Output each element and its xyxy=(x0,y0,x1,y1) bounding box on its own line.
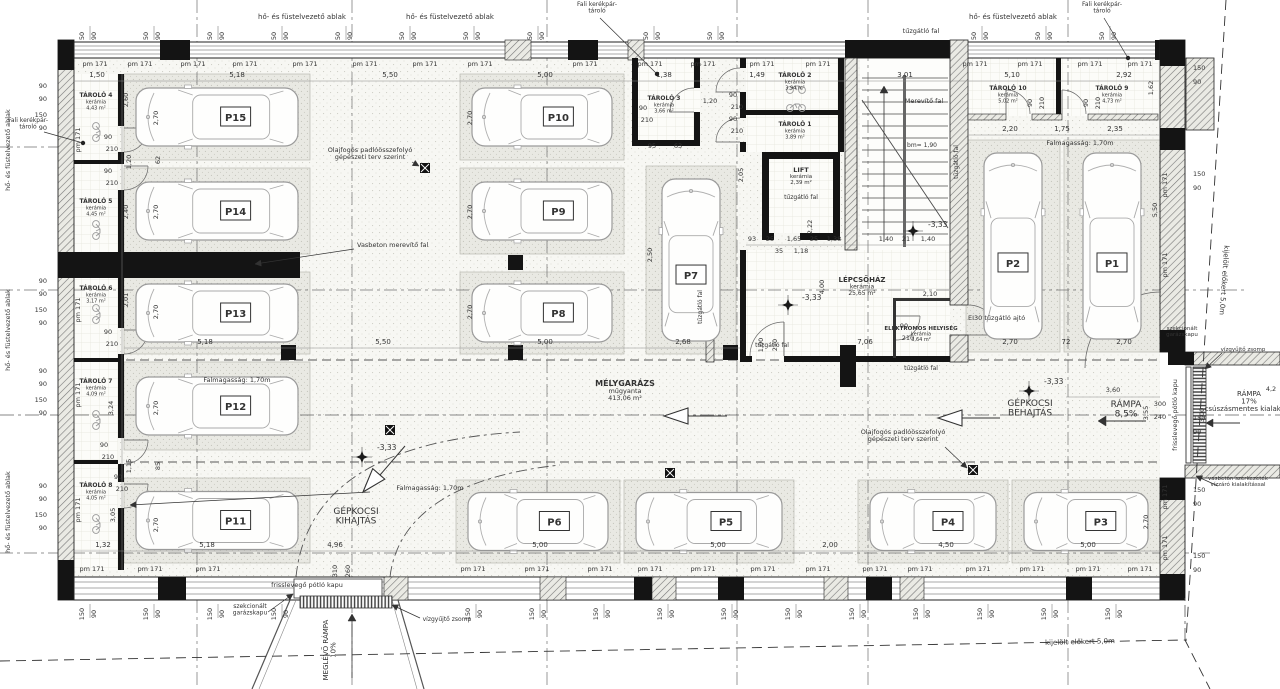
structural-column xyxy=(508,345,523,360)
car-icon xyxy=(981,153,1045,339)
storage-wall xyxy=(118,354,124,438)
storage-room-label: TÁROLÓ 7 xyxy=(80,378,113,385)
car-part xyxy=(185,435,192,438)
tick-label: 90 xyxy=(39,290,47,298)
tick-label: 50 xyxy=(142,32,150,40)
wall-column xyxy=(1066,577,1092,600)
storage-room-area: 3,94 m² xyxy=(785,86,805,92)
storage-room-finish: kerámia xyxy=(86,99,106,106)
tick-label: 150 xyxy=(1193,486,1205,494)
annotation: tűzgátló fal xyxy=(904,365,938,372)
car-part xyxy=(659,228,662,235)
parapet-label: pm 171 xyxy=(751,565,776,573)
wall-column-hatched xyxy=(824,577,848,600)
parapet-label: pm 171 xyxy=(1161,485,1169,510)
tick-label: 150 xyxy=(848,608,856,620)
car-part xyxy=(472,88,612,146)
parapet-label: pm 171 xyxy=(691,60,716,68)
car-part xyxy=(185,240,192,243)
parking-label: P8 xyxy=(551,309,565,320)
dimension-text: 2,70 xyxy=(466,111,474,125)
car-part xyxy=(981,209,984,216)
staircase-wall xyxy=(740,356,752,362)
dimension-text: 2,70 xyxy=(1116,338,1132,346)
storage-room-area: 3,89 m² xyxy=(785,135,805,141)
annotation: frisslevegő pótló kapu xyxy=(1170,379,1179,451)
dimension-text: 2,05 xyxy=(737,168,745,182)
annotation: bm= 1,90 xyxy=(907,142,937,149)
parking-label: P9 xyxy=(551,207,565,218)
stair-wall xyxy=(845,58,857,250)
parapet-label: pm 171 xyxy=(691,565,716,573)
tick-label: 50 xyxy=(1098,32,1106,40)
car-part xyxy=(185,85,192,88)
tick-label: 90 xyxy=(1193,428,1201,436)
dimension-text: 2,01 xyxy=(122,293,130,307)
dimension-text: 3,01 xyxy=(897,71,913,79)
dimension-text: 95 xyxy=(648,142,656,150)
door-dimension: 210 xyxy=(106,145,118,153)
tick-label: 90 xyxy=(218,610,226,618)
dimension-text: 5,50 xyxy=(375,338,391,346)
door-dimension: 210 xyxy=(902,334,914,342)
wall-column xyxy=(1160,40,1185,66)
parapet-label: pm 171 xyxy=(1161,536,1169,561)
parking-label: P4 xyxy=(941,518,955,529)
parapet-label: pm 171 xyxy=(638,565,663,573)
tick-label: 90 xyxy=(988,610,996,618)
tick-label: 90 xyxy=(39,380,47,388)
car-part xyxy=(662,179,720,341)
parapet-label: pm 171 xyxy=(863,565,888,573)
lift-label-area: 2,39 m² xyxy=(790,179,812,186)
wall-column-hatched xyxy=(505,40,531,60)
parapet-label: pm 171 xyxy=(1128,60,1153,68)
tick-label: 150 xyxy=(35,396,47,404)
dimension-text: 2,70 xyxy=(1002,338,1018,346)
dimension-text: 3,60 xyxy=(1106,386,1120,394)
car-part xyxy=(472,182,612,240)
car-part xyxy=(514,146,521,149)
tick-label: 90 xyxy=(218,32,226,40)
tick-label: 90 xyxy=(39,367,47,375)
door-dimension: 90 xyxy=(639,104,647,112)
storage910-wall xyxy=(968,114,1006,120)
parapet-label: pm 171 xyxy=(413,60,438,68)
storage-room-area: 5,02 m² xyxy=(998,99,1018,105)
car-part xyxy=(514,281,521,284)
elevation-label: -3,33 xyxy=(1044,377,1064,386)
dimension-text: 5,50 xyxy=(382,71,398,79)
parapet-label: pm 171 xyxy=(1076,565,1101,573)
tick-label: 90 xyxy=(538,32,546,40)
door-dimension: 90 xyxy=(729,91,737,99)
wall-column-hatched xyxy=(900,577,924,600)
annotation: tűzgátló fal xyxy=(903,26,940,35)
tick-label: 90 xyxy=(90,610,98,618)
storage-room-label: TÁROLÓ 10 xyxy=(989,85,1026,92)
storage-room-finish: kerámia xyxy=(86,292,106,299)
storage-wall xyxy=(118,152,124,164)
tick-label: 50 xyxy=(206,32,214,40)
storage-room-label: TÁROLÓ 1 xyxy=(779,121,812,128)
dimension-text: 2,70 xyxy=(152,518,160,532)
tick-label: 90 xyxy=(476,610,484,618)
car-icon xyxy=(472,179,612,243)
storage-room-label: TÁROLÓ 4 xyxy=(80,92,113,99)
door-dimension: 210 xyxy=(641,116,653,124)
door-dimension: 210 xyxy=(731,127,743,135)
tick-label: 90 xyxy=(90,32,98,40)
dimension-text: 62 xyxy=(154,156,162,164)
storage-room-finish: kerámia xyxy=(86,205,106,212)
tick-label: 90 xyxy=(796,610,804,618)
annotation-leader-dot xyxy=(655,72,659,76)
sectional-gate xyxy=(1186,367,1191,463)
parking-label: P14 xyxy=(225,207,246,218)
storage-room-label: TÁROLÓ 8 xyxy=(80,482,113,489)
car-part xyxy=(136,88,298,146)
door-dimension: 90 xyxy=(104,328,112,336)
elevation-label: -3,33 xyxy=(928,220,948,229)
tick-label: 150 xyxy=(1193,552,1205,560)
dimension-text: 5,00 xyxy=(1080,541,1096,549)
car-part xyxy=(1042,209,1045,216)
car-icon xyxy=(136,179,298,243)
car-part xyxy=(1141,209,1144,216)
parking-label: P12 xyxy=(225,402,246,413)
car-icon xyxy=(136,281,298,345)
ramp-wall xyxy=(1185,352,1280,365)
dimension-text: 1,49 xyxy=(749,71,765,79)
storage910-wall xyxy=(1032,114,1062,120)
dimension-text: 3,55 xyxy=(1142,406,1150,420)
tick-label: 150 xyxy=(656,608,664,620)
storage-room-label: TÁROLÓ 9 xyxy=(1096,85,1129,92)
staircase-label-area: 25,65 m² xyxy=(848,290,876,297)
car-part xyxy=(1061,490,1068,493)
tick-label: 50 xyxy=(1034,32,1042,40)
dimension-text: 3,05 xyxy=(109,508,117,522)
dimension-text: 5,18 xyxy=(229,71,245,79)
parapet-label: pm 171 xyxy=(74,298,82,323)
storage-room-finish: kerámia xyxy=(86,489,106,496)
shear-wall xyxy=(58,252,300,278)
annotation: hő- és füstelvezető ablak xyxy=(969,12,1058,21)
annotation: vízgyűjtő zsomp xyxy=(423,616,472,623)
wall-column xyxy=(160,40,190,60)
car-part xyxy=(136,377,298,435)
wall-column xyxy=(58,40,74,70)
tick-label: 50 xyxy=(398,32,406,40)
parapet-label: pm 171 xyxy=(74,383,82,408)
storage-room-finish: kerámia xyxy=(998,92,1018,99)
structural-column xyxy=(508,255,523,270)
annotation: vasbeton szerkezetekvízzáró kialakítássa… xyxy=(1208,476,1269,488)
car-part xyxy=(636,493,782,551)
tick-label: 150 xyxy=(976,608,984,620)
tick-label: 90 xyxy=(154,610,162,618)
dimension-text: 5,00 xyxy=(537,338,553,346)
dimension-text: 85 xyxy=(154,462,162,470)
storage3-wall xyxy=(632,58,638,146)
dimension-text: 2,70 xyxy=(152,305,160,319)
tick-label: 90 xyxy=(39,82,47,90)
door-dimension: 90 xyxy=(900,322,908,330)
wall-column-hatched xyxy=(540,577,566,600)
annotation: Olajfogós padlóösszefolyógépészeti terv … xyxy=(328,146,413,161)
dimension-text: 2,70 xyxy=(152,111,160,125)
dimension-text: 7,06 xyxy=(857,338,873,346)
door-dimension: 90 xyxy=(100,441,108,449)
floor-plan: P15P14P13P12P11P10P9P8P7P2P1P6P5P4P3-3,3… xyxy=(0,0,1280,689)
car-part xyxy=(908,490,915,493)
dimension-text: 2,35 xyxy=(1107,125,1123,133)
tick-label: 90 xyxy=(474,32,482,40)
annotation: Falmagasság: 1,70m xyxy=(203,376,270,384)
car-part xyxy=(1080,209,1083,216)
parapet-label: pm 171 xyxy=(83,60,108,68)
parapet-label: pm 171 xyxy=(588,565,613,573)
tick-label: 90 xyxy=(732,610,740,618)
parapet-label: pm 171 xyxy=(1020,565,1045,573)
tick-label: 150 xyxy=(35,511,47,519)
dimension-text: 2,40 xyxy=(122,205,130,219)
lift-wall xyxy=(762,152,769,240)
tick-label: 90 xyxy=(1052,610,1060,618)
car-part xyxy=(680,490,687,493)
parapet-label: pm 171 xyxy=(1161,173,1169,198)
dimension-text: 2,50 xyxy=(646,248,654,262)
tick-label: 50 xyxy=(526,32,534,40)
dimension-text: 3,24 xyxy=(107,401,115,415)
tick-label: 90 xyxy=(924,610,932,618)
tick-label: 90 xyxy=(39,124,47,132)
car-part xyxy=(185,146,192,149)
tick-label: 90 xyxy=(39,95,47,103)
tick-label: 90 xyxy=(604,610,612,618)
dimension-text: 2,70 xyxy=(152,401,160,415)
parking-label: P6 xyxy=(547,518,561,529)
dimension-text: 5,00 xyxy=(532,541,548,549)
storage-divider xyxy=(74,358,118,362)
car-part xyxy=(514,85,521,88)
fire-wall xyxy=(950,335,968,362)
tick-label: 90 xyxy=(39,495,47,503)
dimension-text: 2,68 xyxy=(675,338,691,346)
tick-label: 90 xyxy=(346,32,354,40)
parapet-label: pm 171 xyxy=(1128,565,1153,573)
dimension-text: 2,70 xyxy=(466,205,474,219)
parking-label: P15 xyxy=(225,113,246,124)
storage-room-finish: kerámia xyxy=(654,102,674,109)
tick-label: 90 xyxy=(540,610,548,618)
storage-room-area: 4,73 m² xyxy=(1102,99,1122,105)
tick-label: 150 xyxy=(784,608,792,620)
tick-label: 50 xyxy=(270,32,278,40)
storage-divider xyxy=(74,160,118,164)
storage-room-area: 4,09 m² xyxy=(86,392,106,398)
tick-label: 90 xyxy=(39,319,47,327)
dimension-text: 2,60 xyxy=(122,93,130,107)
car-part xyxy=(185,374,192,377)
car-part xyxy=(510,490,517,493)
car-icon xyxy=(136,85,298,149)
dimension-text: 300 xyxy=(1154,400,1166,408)
tick-label: 150 xyxy=(206,608,214,620)
tick-label: 90 xyxy=(718,32,726,40)
dimension-text: 1,40 xyxy=(879,235,893,243)
tick-label: 150 xyxy=(592,608,600,620)
dimension-text: 1,20 xyxy=(703,97,717,105)
door-dimension: 210 xyxy=(106,340,118,348)
annotation: Olajfogós padlóösszefolyógépészeti terv … xyxy=(861,428,946,443)
tick-label: 150 xyxy=(1193,64,1205,72)
dimension-text: 5,50 xyxy=(1151,203,1159,217)
dimension-text: 93 xyxy=(748,235,756,243)
storage-room-label: TÁROLÓ 3 xyxy=(648,95,681,102)
storage12-wall xyxy=(740,58,746,68)
structural-column xyxy=(281,345,296,360)
annotation: vízgyűjtő zsomp xyxy=(1221,346,1266,353)
door-dimension: 210 xyxy=(106,179,118,187)
dimension-text: 72 xyxy=(1062,338,1071,346)
tick-label: 90 xyxy=(1193,566,1201,574)
storage-room-area: 4,43 m² xyxy=(86,106,106,112)
dimension-text: 1,15 xyxy=(125,459,133,473)
car-part xyxy=(984,153,1042,339)
parapet-label: pm 171 xyxy=(138,565,163,573)
dimension-text: 1,38 xyxy=(827,235,841,243)
parapet-label: pm 171 xyxy=(1078,60,1103,68)
parapet-label: pm 171 xyxy=(233,60,258,68)
dimension-text: 25 xyxy=(766,235,774,243)
tick-label: 90 xyxy=(282,32,290,40)
dimension-text: 2,70 xyxy=(152,205,160,219)
door-dimension: 210 xyxy=(1094,97,1102,109)
tick-label: 90 xyxy=(1116,610,1124,618)
annotation: frisslevegő pótló kapu xyxy=(271,580,343,589)
car-part xyxy=(185,342,192,345)
parking-label: P5 xyxy=(719,518,733,529)
tick-label: 90 xyxy=(1193,78,1201,86)
annotation: szekcionáltgarázskapu xyxy=(1166,325,1198,338)
gate-post xyxy=(1168,352,1194,365)
annotation-leader-dot xyxy=(1126,56,1130,60)
door-dimension: 210 xyxy=(116,485,128,493)
storage910-wall xyxy=(1088,114,1158,120)
dimension-text: 4,00 xyxy=(818,280,826,294)
tick-label: 90 xyxy=(282,610,290,618)
tick-label: 90 xyxy=(668,610,676,618)
parking-label: P3 xyxy=(1094,518,1108,529)
tick-label: 50 xyxy=(78,32,86,40)
parking-label: P2 xyxy=(1006,259,1020,270)
tick-label: 90 xyxy=(39,482,47,490)
car-icon xyxy=(136,489,298,553)
dimension-text: 1,40 xyxy=(921,235,935,243)
storage-room-label: TÁROLÓ 2 xyxy=(779,72,812,79)
tick-label: 50 xyxy=(642,32,650,40)
annotation: tűzgátló fal xyxy=(784,194,818,201)
annotation: tűzgátló fal xyxy=(953,145,960,179)
dimension-text: 1,32 xyxy=(95,541,111,549)
car-part xyxy=(510,550,517,553)
tick-label: 150 xyxy=(142,608,150,620)
electrical-wall xyxy=(893,298,950,301)
tick-label: 150 xyxy=(1104,608,1112,620)
parapet-label: pm 171 xyxy=(181,60,206,68)
door-dimension: 90 xyxy=(104,133,112,141)
parking-label: P13 xyxy=(225,309,246,320)
tick-label: 150 xyxy=(912,608,920,620)
car-icon xyxy=(472,281,612,345)
wall-column-hatched xyxy=(652,577,676,600)
wall-column xyxy=(718,577,744,600)
wall-column xyxy=(1160,574,1185,600)
parapet-label: pm 171 xyxy=(806,60,831,68)
dimension-text: 2,70 xyxy=(1142,515,1150,529)
door-dimension: 90 xyxy=(114,473,122,481)
car-part xyxy=(1083,153,1141,339)
parapet-label: pm 171 xyxy=(293,60,318,68)
car-part xyxy=(514,342,521,345)
car-icon xyxy=(659,179,723,341)
parapet-label: pm 171 xyxy=(963,60,988,68)
wall-column xyxy=(866,577,892,600)
parapet-label: pm 171 xyxy=(1018,60,1043,68)
dimension-text: 2,22 xyxy=(806,220,814,234)
storage3-wall xyxy=(694,112,700,146)
parapet-label: pm 171 xyxy=(750,60,775,68)
dimension-text: 5,00 xyxy=(710,541,726,549)
parapet-label: pm 171 xyxy=(74,128,82,153)
door-dimension: 90 xyxy=(729,115,737,123)
wall-column xyxy=(158,577,186,600)
dimension-text: 1,50 xyxy=(89,71,105,79)
dimension-text: 21 xyxy=(902,235,910,243)
door-dimension: 90 xyxy=(104,167,112,175)
tick-label: 50 xyxy=(462,32,470,40)
wall-column xyxy=(58,560,74,600)
parapet-label: pm 171 xyxy=(74,498,82,523)
tick-label: 150 xyxy=(1193,414,1205,422)
dimension-text: 35 xyxy=(775,247,783,255)
parapet-label: pm 171 xyxy=(525,565,550,573)
parapet-label: pm 171 xyxy=(806,565,831,573)
left-wall xyxy=(58,40,74,600)
dimension-text: 310 xyxy=(331,565,339,577)
tick-label: 90 xyxy=(1193,184,1201,192)
parapet-label: pm 171 xyxy=(966,565,991,573)
annotation: tűzgátló fal xyxy=(755,342,789,349)
elevation-label: -3,33 xyxy=(377,443,397,452)
car-icon xyxy=(636,490,782,554)
dimension-text: 63 xyxy=(674,142,682,150)
dimension-text: 4,50 xyxy=(938,541,954,549)
tick-label: 90 xyxy=(39,524,47,532)
annotation: GÉPKOCSIBEHAJTÁS xyxy=(1007,397,1052,419)
parapet-label: pm 171 xyxy=(1161,253,1169,278)
tick-label: 150 xyxy=(78,608,86,620)
car-part xyxy=(185,281,192,284)
tick-label: 50 xyxy=(706,32,714,40)
wall-column xyxy=(1160,128,1185,150)
staircase-wall xyxy=(784,356,950,362)
dimension-text: 1,20 xyxy=(125,155,133,169)
storage-room-area: 3,66 m² xyxy=(654,109,674,115)
dimension-text: 2,70 xyxy=(466,305,474,319)
